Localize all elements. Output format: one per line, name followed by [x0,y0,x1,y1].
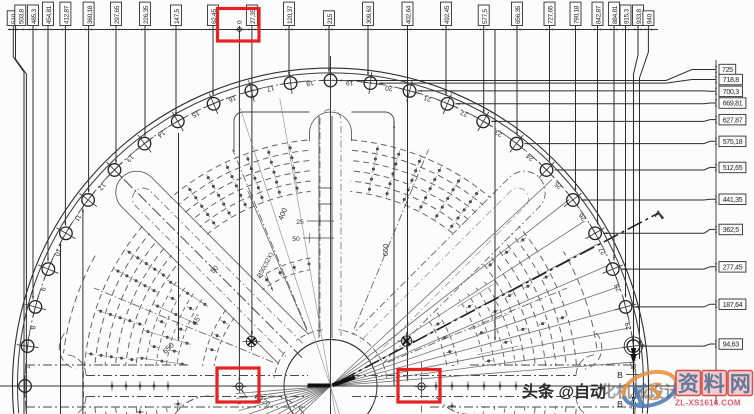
svg-text:277,45: 277,45 [723,265,743,272]
svg-text:656,35: 656,35 [515,5,522,24]
svg-text:309,63: 309,63 [366,5,373,24]
svg-text:492,45: 492,45 [444,5,451,24]
svg-text:20: 20 [385,84,394,92]
svg-text:933,8: 933,8 [636,9,643,24]
svg-text:215: 215 [327,13,334,24]
svg-text:915,3: 915,3 [624,9,631,24]
svg-text:19: 19 [346,79,354,86]
svg-text:575,18: 575,18 [723,139,743,146]
svg-text:7: 7 [24,365,31,369]
svg-text:资: 资 [678,373,699,396]
svg-text:187,64: 187,64 [723,302,743,309]
svg-text:790,18: 790,18 [574,5,581,24]
svg-text:0: 0 [237,20,244,24]
svg-text:18: 18 [305,79,314,87]
svg-text:725: 725 [722,67,733,74]
svg-text:940: 940 [647,13,654,24]
svg-text:147,5: 147,5 [174,9,181,24]
svg-text:577,5: 577,5 [482,9,489,24]
svg-text:503,8: 503,8 [19,9,26,24]
svg-text:512,65: 512,65 [723,165,743,172]
svg-text:485,3: 485,3 [31,9,38,24]
svg-text:842,87: 842,87 [596,5,603,24]
svg-text:120,37: 120,37 [287,5,294,24]
svg-text:X: X [627,380,648,411]
svg-text:B: B [617,370,623,380]
svg-text:669,81: 669,81 [723,101,743,108]
svg-text:297,65: 297,65 [114,5,121,24]
svg-text:226,35: 226,35 [143,5,150,24]
svg-text:360,18: 360,18 [87,5,94,24]
svg-text:727,65: 727,65 [548,5,555,24]
svg-text:718,8: 718,8 [723,77,739,84]
svg-text:454,81: 454,81 [46,5,53,24]
svg-text:650: 650 [381,244,390,257]
svg-text:402,64: 402,64 [406,5,413,24]
svg-text:50: 50 [292,236,300,243]
svg-text:700,3: 700,3 [723,89,739,96]
svg-text:441,35: 441,35 [723,197,743,204]
svg-text:884,81: 884,81 [612,5,619,24]
svg-text:ZL-XS1616.COM: ZL-XS1616.COM [675,399,741,408]
svg-text:料: 料 [704,373,725,396]
svg-text:25: 25 [296,219,304,226]
svg-text:S: S [648,377,662,406]
svg-text:网: 网 [730,373,751,396]
svg-text:627,87: 627,87 [723,117,743,124]
svg-text:94,63: 94,63 [723,342,739,349]
svg-text:27,35: 27,35 [250,9,257,24]
svg-text:头条 @自动: 头条 @自动 [522,382,606,401]
svg-text:A: A [655,209,661,219]
svg-text:412,87: 412,87 [64,5,71,24]
svg-text:362,5: 362,5 [723,227,739,234]
